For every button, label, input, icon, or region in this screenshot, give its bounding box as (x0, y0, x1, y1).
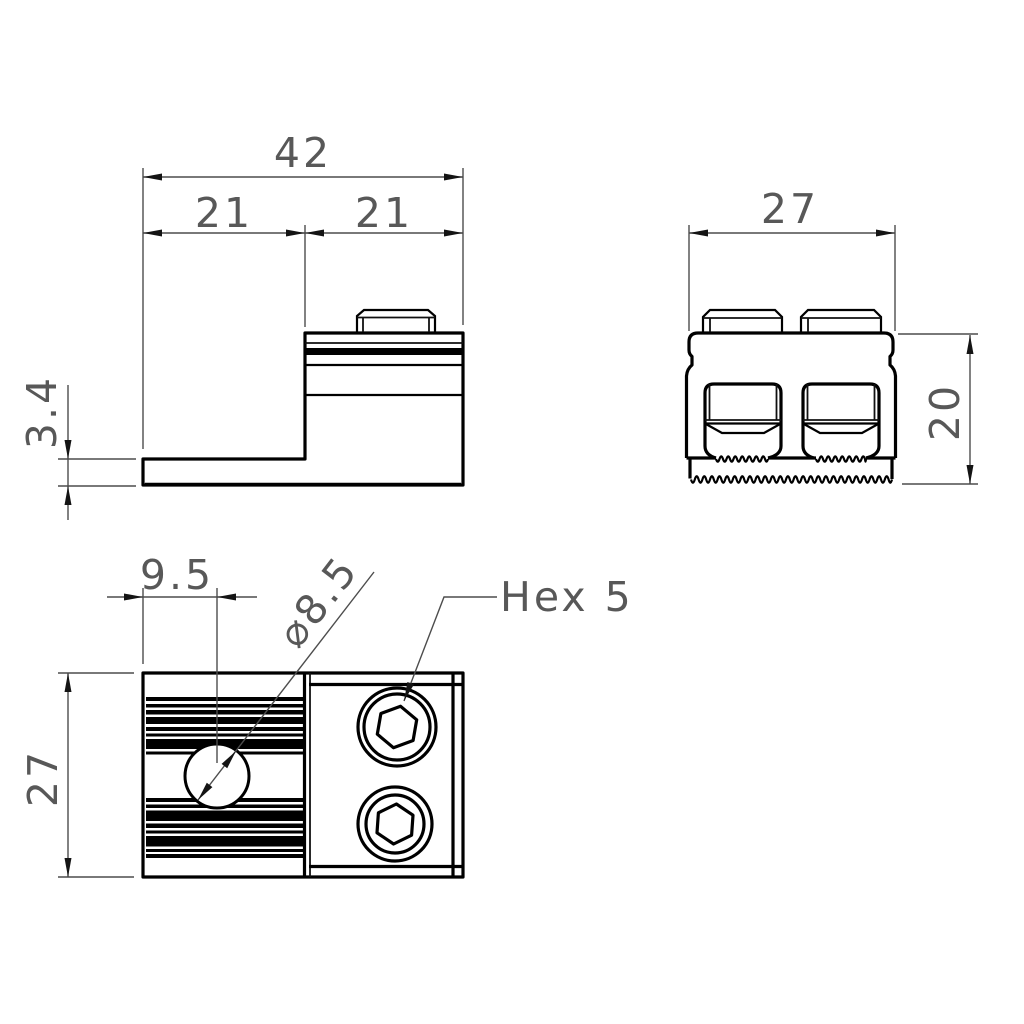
front-view: 27 20 (687, 185, 979, 484)
front-view-window-right (803, 384, 879, 458)
engineering-drawing-canvas: 42 21 21 3.4 (0, 0, 1024, 1024)
dim-label-hex: Hex 5 (500, 573, 634, 621)
dim-label-21-right: 21 (355, 189, 413, 237)
front-view-body-right-edge (884, 333, 896, 458)
drawing-sheet: 42 21 21 3.4 (0, 0, 1024, 1024)
side-view-dim-21-21: 21 21 (143, 189, 463, 327)
top-view-dim-27: 27 (19, 673, 134, 877)
front-view-window-left (705, 384, 781, 458)
front-view-dim-20: 20 (898, 334, 978, 484)
side-view-boss (357, 310, 435, 332)
side-view-thick-band (306, 348, 462, 355)
side-view: 42 21 21 3.4 (18, 129, 463, 520)
dim-label-21-left: 21 (195, 189, 253, 237)
hex-socket-lower (377, 804, 413, 844)
dim-label-hole-diameter: ⌀8.5 (268, 546, 368, 656)
front-view-tab-right (801, 310, 881, 332)
dim-label-20: 20 (921, 383, 969, 441)
front-view-serration-left (716, 456, 768, 461)
dim-label-27-depth: 27 (19, 749, 67, 807)
front-view-base-serration (691, 476, 892, 482)
front-view-tab-left (703, 310, 782, 332)
top-view-screw-upper (358, 688, 436, 766)
top-view-screw-lower (358, 787, 432, 861)
dim-label-27-width: 27 (761, 185, 819, 233)
side-view-dim-3p4: 3.4 (18, 375, 136, 520)
hex-socket-upper (377, 706, 416, 747)
side-view-outline (143, 333, 463, 485)
top-view-hex-callout: Hex 5 (404, 573, 634, 701)
front-view-serration-right (816, 456, 866, 461)
dim-label-9p5: 9.5 (140, 551, 214, 599)
front-view-body-left-edge (687, 333, 699, 458)
dim-label-3p4: 3.4 (18, 375, 66, 449)
side-view-dim-42: 42 (143, 129, 463, 449)
top-view-dim-9p5: 9.5 (107, 551, 257, 664)
top-view: 9.5 ⌀8.5 Hex 5 27 (19, 546, 634, 877)
dim-label-42: 42 (274, 129, 332, 177)
